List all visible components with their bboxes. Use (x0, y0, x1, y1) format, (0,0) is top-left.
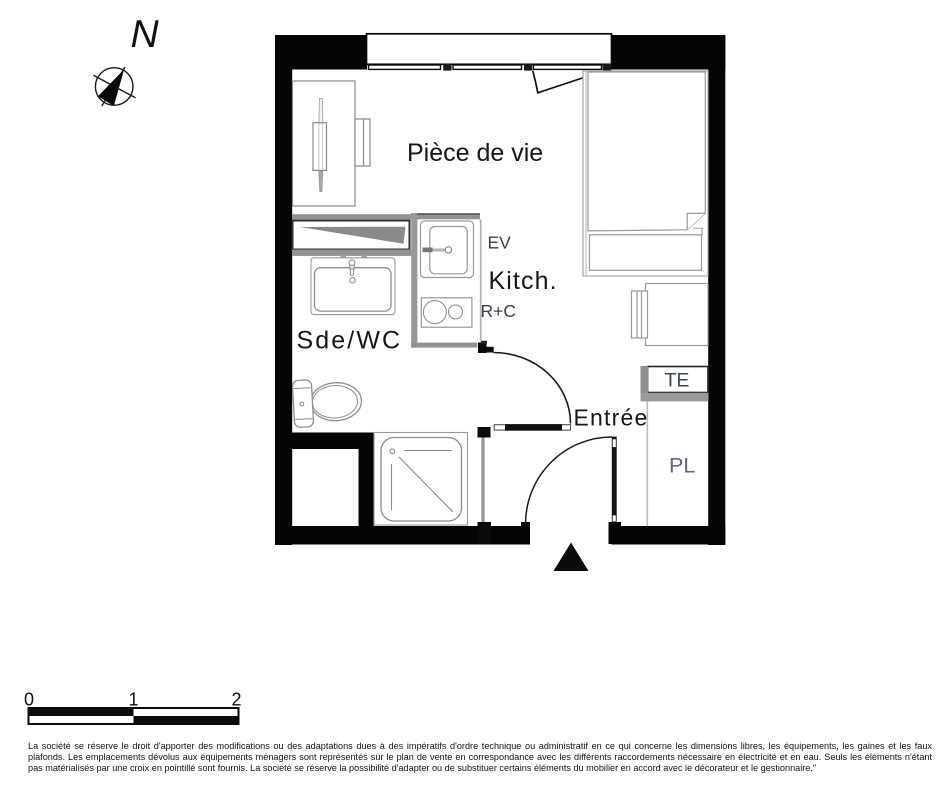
svg-text:R+C: R+C (481, 301, 517, 321)
svg-text:TE: TE (665, 369, 690, 391)
svg-text:PL: PL (669, 453, 695, 477)
svg-text:1: 1 (129, 690, 139, 710)
svg-text:Sde/WC: Sde/WC (297, 327, 403, 355)
svg-text:Entrée: Entrée (574, 405, 649, 431)
svg-text:EV: EV (488, 233, 512, 253)
svg-text:N: N (131, 13, 160, 56)
svg-text:2: 2 (232, 690, 242, 710)
svg-text:Pièce de vie: Pièce de vie (407, 139, 543, 167)
svg-text:0: 0 (24, 690, 34, 710)
svg-text:Kitch.: Kitch. (489, 267, 558, 295)
